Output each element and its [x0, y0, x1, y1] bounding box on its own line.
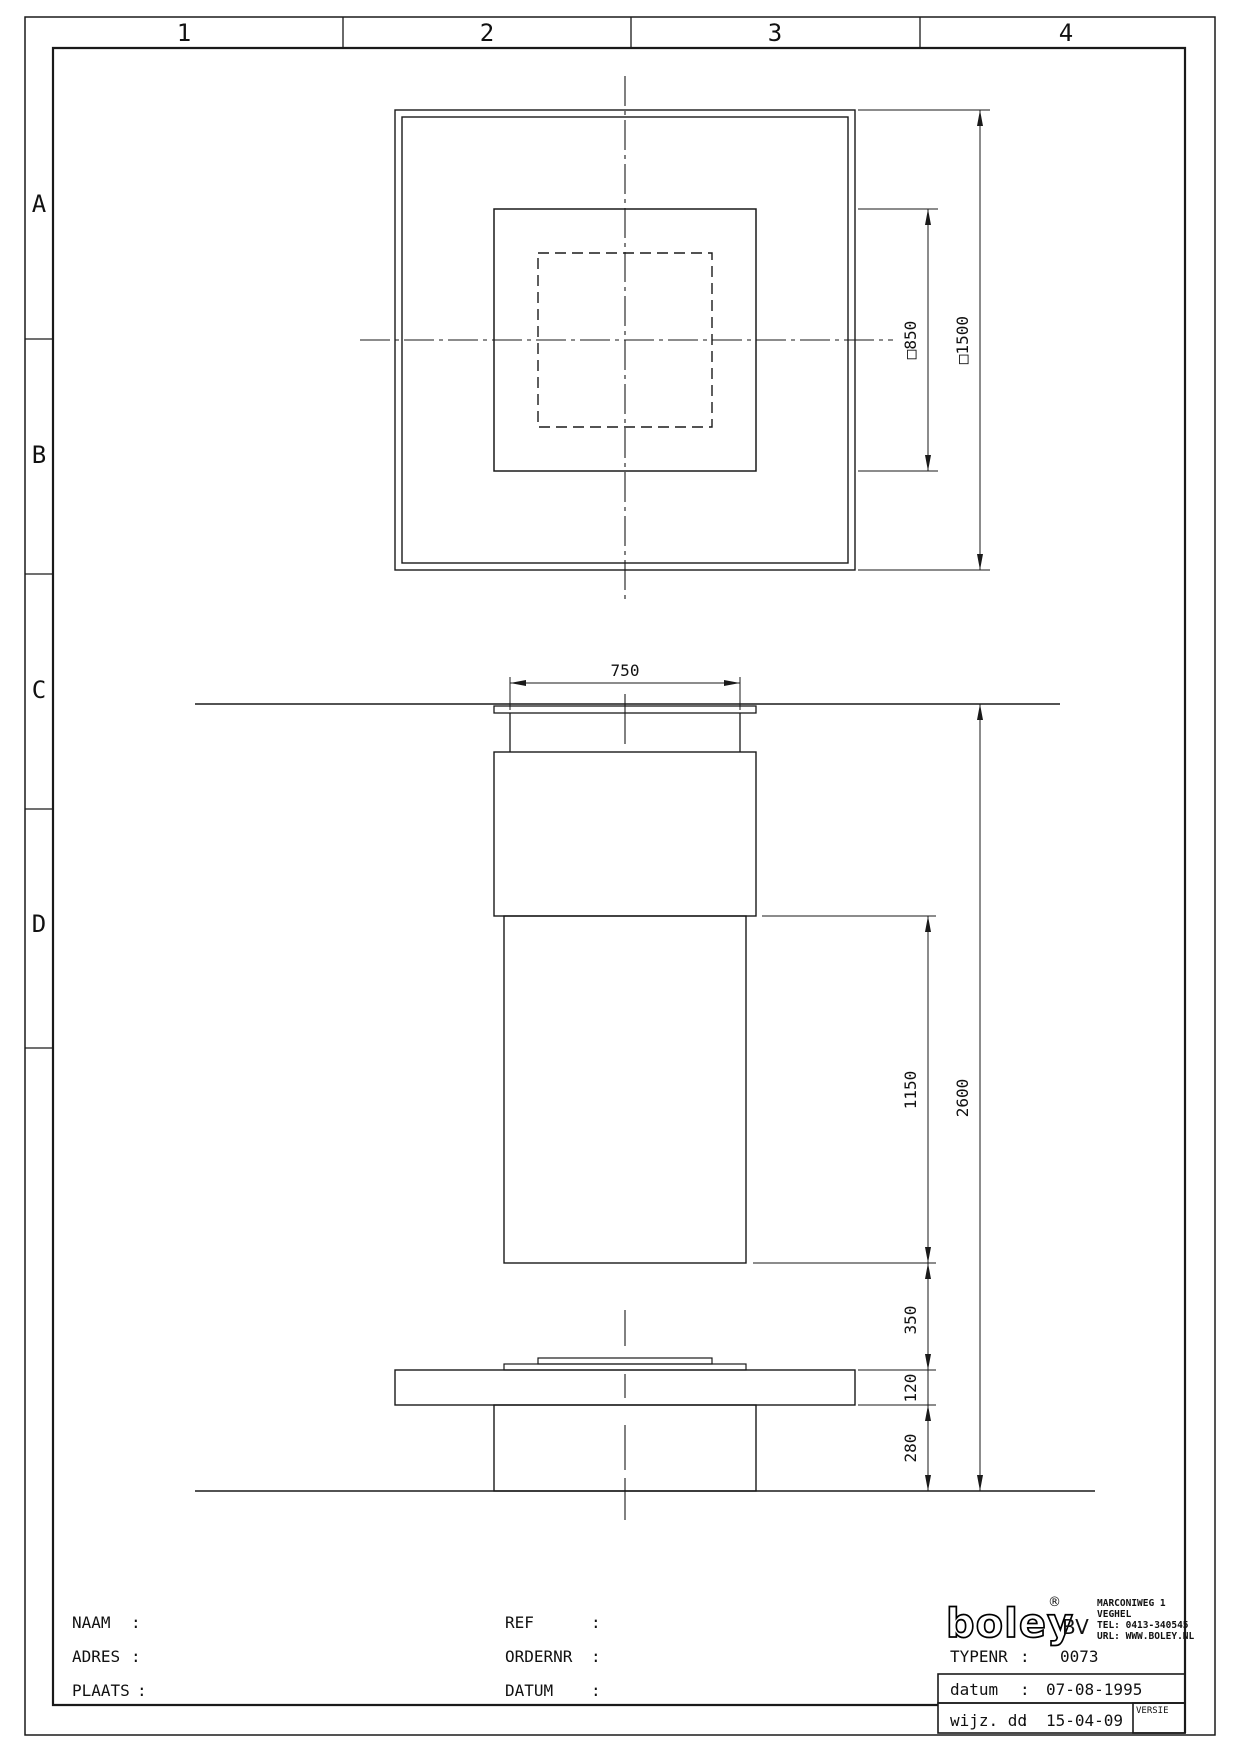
head-box	[494, 752, 756, 916]
grid-row-b: B	[32, 441, 46, 469]
company-url: URL: WWW.BOLEY.NL	[1097, 1631, 1195, 1642]
elev-dim-1150-label: 1150	[901, 1071, 920, 1110]
wijz-row-label: wijz. dd	[950, 1711, 1027, 1730]
typenr-colon: :	[1020, 1647, 1030, 1666]
grid-row-c: C	[32, 676, 46, 704]
wijz-row-colon: :	[1020, 1711, 1030, 1730]
company-address-line1: MARCONIWEG 1	[1097, 1598, 1166, 1609]
company-address-line2: VEGHEL	[1097, 1609, 1132, 1620]
plaats-label: PLAATS	[72, 1681, 130, 1700]
lower-base-plate	[504, 1364, 746, 1370]
elev-dim-2600-label: 2600	[953, 1079, 972, 1118]
versie-label: VERSIE	[1136, 1706, 1169, 1716]
outer-border	[25, 17, 1215, 1735]
drawing-sheet: 1 2 3 4 A B C D	[0, 0, 1240, 1755]
ref-colon: :	[591, 1613, 601, 1632]
datum-row-label: datum	[950, 1680, 998, 1699]
elev-dim-350-label: 350	[901, 1306, 920, 1335]
grid-row-d: D	[32, 910, 46, 938]
grid-col-3: 3	[768, 19, 782, 47]
datum-row-value: 07-08-1995	[1046, 1680, 1142, 1699]
grid-row-a: A	[32, 190, 47, 218]
title-block: NAAM : ADRES : PLAATS : REF : ORDERNR : …	[72, 1595, 1195, 1733]
adres-colon: :	[131, 1647, 141, 1666]
company-phone: TEL: 0413-340545	[1097, 1620, 1189, 1631]
sheet-frame	[25, 17, 1215, 1735]
datum-row-colon: :	[1020, 1680, 1030, 1699]
ordernr-colon: :	[591, 1647, 601, 1666]
elev-dim-280-label: 280	[901, 1434, 920, 1463]
grid-col-4: 4	[1059, 19, 1073, 47]
grid-col-2: 2	[480, 19, 494, 47]
elev-dim-120-label: 120	[901, 1374, 920, 1403]
elev-dim-750-label: 750	[611, 661, 640, 680]
inner-border	[53, 48, 1185, 1733]
plan-view	[360, 76, 990, 602]
typenr-label: TYPENR	[950, 1647, 1008, 1666]
plaats-colon: :	[137, 1681, 147, 1700]
datum-label: DATUM	[505, 1681, 553, 1700]
boley-logo-registered-icon: ®	[1048, 1595, 1061, 1610]
grid-labels: 1 2 3 4 A B C D	[32, 19, 1073, 938]
wijz-row-value: 15-04-09	[1046, 1711, 1123, 1730]
adres-label: ADRES	[72, 1647, 120, 1666]
ref-label: REF	[505, 1613, 534, 1632]
main-column	[504, 916, 746, 1263]
ordernr-label: ORDERNR	[505, 1647, 573, 1666]
grid-col-1: 1	[177, 19, 191, 47]
datum-colon: :	[591, 1681, 601, 1700]
boley-bv: BV	[1062, 1615, 1089, 1639]
plan-dim-1500-label: □1500	[953, 316, 972, 364]
plan-dim-850-label: □850	[901, 321, 920, 360]
grid-column-dividers	[343, 17, 920, 48]
typenr-value: 0073	[1060, 1647, 1099, 1666]
naam-colon: :	[131, 1613, 141, 1632]
naam-label: NAAM	[72, 1613, 111, 1632]
upper-base-plate	[538, 1358, 712, 1364]
elev-dim-2600	[977, 704, 983, 1491]
